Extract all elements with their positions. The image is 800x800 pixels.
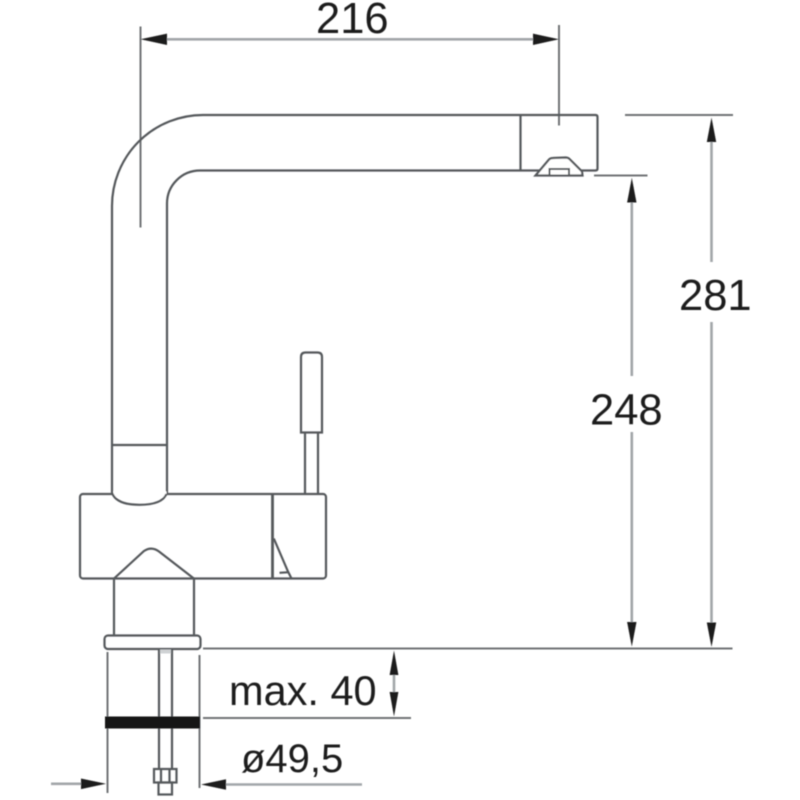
svg-text:max. 40: max. 40 xyxy=(229,667,377,714)
svg-text:ø49,5: ø49,5 xyxy=(241,737,343,781)
svg-text:248: 248 xyxy=(590,387,663,435)
svg-text:216: 216 xyxy=(316,0,389,43)
svg-text:281: 281 xyxy=(679,272,752,320)
